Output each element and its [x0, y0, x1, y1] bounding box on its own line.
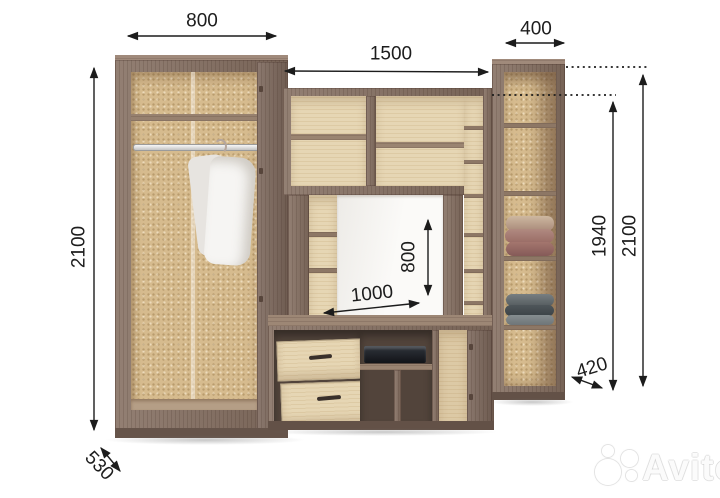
watermark-brand-text: Avito	[642, 447, 720, 489]
dim-label-niche-width: 1000	[350, 282, 394, 305]
avito-logo-icon	[595, 459, 621, 485]
dim-line-center-width	[285, 71, 488, 72]
dim-label-wardrobe-width: 800	[186, 12, 218, 31]
avito-logo-icon	[626, 470, 637, 481]
dim-label-height-left: 2100	[70, 226, 89, 268]
watermark: Avito	[585, 443, 720, 495]
avito-logo-icon	[602, 445, 614, 457]
dim-label-height-right: 2100	[621, 215, 640, 257]
avito-logo-icon	[621, 450, 638, 467]
dim-label-center-height: 1940	[591, 215, 610, 257]
dim-label-center-width: 1500	[370, 45, 412, 64]
dim-label-niche-height: 800	[400, 241, 419, 273]
furniture-diagram: 800 400 1500 2100 530 800 1000 1940 2100…	[0, 0, 720, 498]
dim-label-cabinet-width: 400	[520, 20, 552, 39]
dimension-lines	[0, 0, 720, 498]
